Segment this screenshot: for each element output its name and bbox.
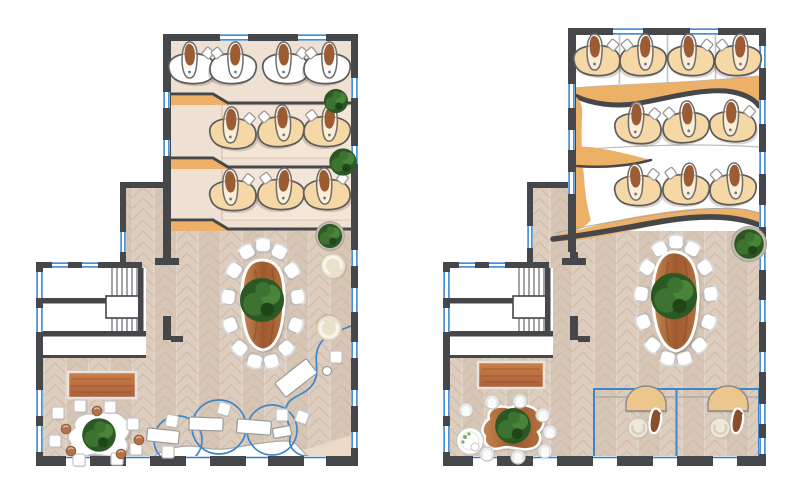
window <box>443 308 450 332</box>
conference-chair <box>220 288 237 306</box>
window <box>351 432 358 448</box>
plant <box>82 418 116 452</box>
window <box>443 390 450 416</box>
window <box>690 28 718 35</box>
round-stool <box>485 395 500 410</box>
plant <box>651 273 697 319</box>
plant <box>495 408 531 444</box>
stairwell-left <box>42 268 146 358</box>
window <box>443 272 450 298</box>
conference-chair <box>289 289 306 307</box>
window <box>351 78 358 98</box>
cube-stool <box>52 407 65 420</box>
window <box>759 352 766 372</box>
wall-segment <box>210 456 246 466</box>
window <box>163 92 170 108</box>
cube-stool <box>162 446 175 459</box>
window <box>759 404 766 424</box>
wood-rug-left <box>68 372 136 398</box>
window <box>489 262 505 268</box>
window <box>568 130 575 150</box>
cube-stool <box>276 409 289 422</box>
wall-segment <box>557 456 593 466</box>
floor-plans-page: Two office floor plans, rendered top vie… <box>0 0 800 498</box>
wall-segment <box>36 456 66 466</box>
window <box>36 426 43 452</box>
wall-segment <box>617 456 653 466</box>
window <box>351 342 358 358</box>
window <box>163 140 170 156</box>
round-stool-wood <box>134 435 144 445</box>
stairwell-right <box>449 268 553 358</box>
cube-stool <box>74 400 87 413</box>
cube-stool <box>130 443 143 456</box>
window <box>613 28 643 35</box>
window <box>36 390 43 416</box>
cube-stool <box>104 401 117 414</box>
conference-chair <box>702 286 719 304</box>
plant <box>329 148 356 175</box>
cube-stool <box>73 454 86 467</box>
window <box>443 426 450 452</box>
side-table <box>457 428 484 455</box>
floor-plan-left <box>36 34 358 467</box>
window <box>759 152 766 174</box>
floor-plan-right <box>443 28 767 466</box>
round-stool <box>543 425 558 440</box>
pod-desk-surface <box>237 419 272 435</box>
floor-plans-canvas <box>0 0 800 498</box>
wall-segment <box>326 456 358 466</box>
window <box>759 100 766 124</box>
round-stool-wood <box>66 446 76 456</box>
cube-stool <box>330 351 343 364</box>
window <box>52 262 68 268</box>
round-stool <box>480 447 495 462</box>
round-stool-wood <box>92 406 102 416</box>
round-stool <box>459 403 474 418</box>
window <box>759 438 766 454</box>
window <box>568 172 575 194</box>
wall-segment <box>677 456 713 466</box>
round-stool-wood <box>61 424 71 434</box>
window <box>568 84 575 108</box>
plant <box>318 224 342 248</box>
wall-segment <box>268 456 304 466</box>
window <box>36 308 43 332</box>
window <box>351 390 358 406</box>
conference-chair <box>256 238 272 254</box>
round-stool <box>538 444 553 459</box>
cube-stool <box>49 435 62 448</box>
wall-segment <box>737 456 766 466</box>
pod-desk-surface <box>146 428 179 444</box>
pod-desk-surface <box>189 417 223 431</box>
window <box>298 34 326 41</box>
wood-rug-right <box>478 362 544 388</box>
small-table <box>323 367 332 376</box>
round-stool-wood <box>116 449 126 459</box>
window <box>36 272 43 298</box>
window <box>120 232 126 252</box>
cube-stool <box>127 418 140 431</box>
round-stool <box>511 450 526 465</box>
window <box>459 262 475 268</box>
cube-stool <box>165 414 180 429</box>
plant <box>240 278 284 322</box>
window <box>351 288 358 312</box>
window <box>82 262 98 268</box>
round-stool <box>513 394 528 409</box>
round-stool <box>536 408 551 423</box>
wall-segment <box>443 456 473 466</box>
window <box>759 300 766 322</box>
window <box>220 34 248 41</box>
conference-chair <box>633 285 650 303</box>
window <box>759 205 766 227</box>
window <box>527 226 533 248</box>
conference-chair <box>669 235 685 251</box>
window <box>351 250 358 266</box>
plant <box>324 89 348 113</box>
plant <box>734 229 763 258</box>
